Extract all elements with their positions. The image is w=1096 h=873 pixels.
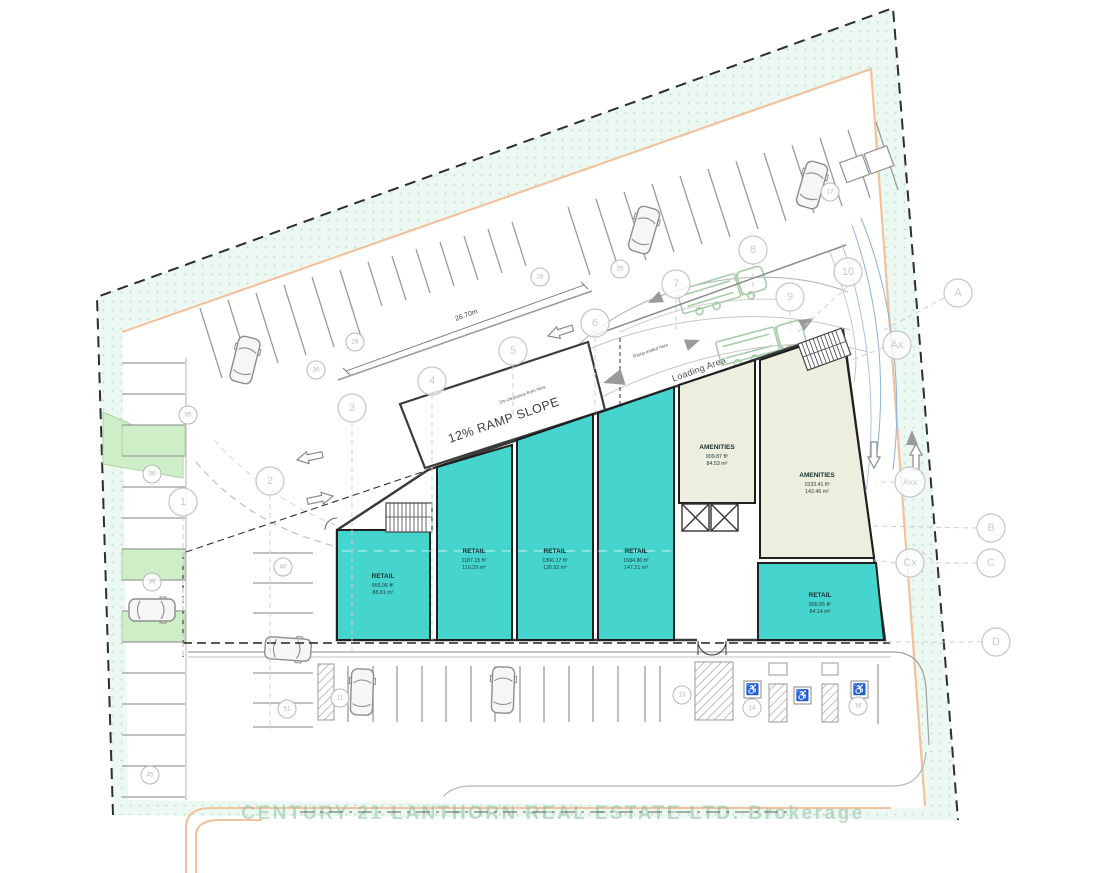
unit-label: RETAIL <box>809 592 832 599</box>
grid-bubble-C: C <box>977 549 1005 577</box>
stall-number-label: 39 <box>148 579 156 586</box>
stall-number-label: 40 <box>279 564 287 571</box>
amenities-label: AMENITIES <box>799 472 835 479</box>
stall-bubble-29: 29 <box>346 333 364 351</box>
amenities-area-ft: 909.87 ft² <box>706 454 729 460</box>
grid-bubble-10: 10 <box>834 258 862 286</box>
grid-bubble-label: 8 <box>750 244 756 256</box>
accessible-parking-sign-1: ♿ <box>744 681 761 698</box>
stall-number-label: 36 <box>148 471 156 478</box>
stall-bubble-30: 30 <box>307 361 325 379</box>
grid-bubble-label: 6 <box>592 317 598 329</box>
grid-bubble-2: 2 <box>256 467 284 495</box>
grid-bubble-label: 2 <box>267 475 273 487</box>
grid-bubble-A: A <box>944 279 972 307</box>
grid-bubble-label: Axx <box>903 477 918 487</box>
grid-bubble-label: 1 <box>180 496 186 508</box>
unit-area-ft: 1584.80 ft² <box>623 558 649 564</box>
accessible-parking-icon: ♿ <box>796 689 810 702</box>
arrowhead-icon <box>645 291 664 308</box>
unit-area-ft: 905.65 ft² <box>809 602 832 608</box>
unit-label: RETAIL <box>625 548 648 555</box>
stair-run-1 <box>386 503 432 532</box>
stall-number-label: 29 <box>351 339 359 346</box>
retail-unit-2 <box>437 445 512 640</box>
grid-bubble-Cx: Cx <box>896 549 924 577</box>
unit-area-m: 88.81 m² <box>373 590 394 596</box>
car-icon <box>264 634 312 663</box>
stall-number-label: 28 <box>536 274 544 281</box>
unit-area-m: 126.92 m² <box>543 565 567 571</box>
ramp-end-note: Ramp ended here <box>632 342 669 359</box>
stall-number-label: 16 <box>854 703 862 710</box>
unit-area-m: 84.14 m² <box>810 609 831 615</box>
grid-bubble-6: 6 <box>581 309 609 337</box>
stall-bubble-28: 28 <box>531 268 549 286</box>
accessible-parking-sign-2: ♿ <box>794 687 811 704</box>
stall-bubble-16: 16 <box>849 697 867 715</box>
grid-bubble-label: 7 <box>673 278 679 290</box>
stall-bubble-25: 25 <box>611 260 629 278</box>
truck-icon <box>677 265 770 319</box>
stall-bubble-35: 35 <box>179 406 197 424</box>
grid-bubble-label: 4 <box>429 375 435 387</box>
grid-bubble-label: 5 <box>510 345 516 357</box>
unit-area-ft: 955.96 ft² <box>372 583 395 589</box>
bottom-parking-row: ♿ ♿ ♿ <box>188 652 929 797</box>
stall-number-label: 11 <box>337 695 344 702</box>
stall-bubble-36: 36 <box>143 465 161 483</box>
grid-bubble-label: 10 <box>842 266 854 278</box>
car-icon <box>489 667 517 714</box>
grid-bubble-8: 8 <box>739 236 767 264</box>
grid-bubble-4: 4 <box>418 367 446 395</box>
car-icon <box>129 597 175 623</box>
grid-bubble-Ax: Ax <box>883 331 911 359</box>
retail-unit-4 <box>598 387 674 640</box>
aisle-dimension-label: 26.70m <box>454 308 479 322</box>
site-plan: ♿ ♿ ♿ 26.70m 12% RAMP SLO <box>0 0 1096 873</box>
grid-bubble-label: C <box>987 557 995 569</box>
unit-area-ft: 1366.17 ft² <box>542 558 568 564</box>
stall-bubble-51: 51 <box>278 700 296 718</box>
stall-number-label: 17 <box>826 189 834 196</box>
grid-bubble-label: 9 <box>787 291 793 303</box>
unit-label: RETAIL <box>544 548 567 555</box>
stall-number-label: 14 <box>748 705 756 712</box>
stall-number-label: 51 <box>283 706 291 713</box>
unit-area-ft: 1187.15 ft² <box>462 558 487 564</box>
accessible-parking-sign-3: ♿ <box>851 681 868 698</box>
amenities-area-1 <box>679 360 755 503</box>
unit-area-m: 147.21 m² <box>624 565 648 571</box>
arrowhead-icon <box>684 334 702 350</box>
stall-bubble-39: 39 <box>143 573 161 591</box>
amenities-area-m: 142.46 m² <box>805 489 829 495</box>
grid-bubble-Axx: Axx <box>895 467 925 497</box>
stall-bubble-14: 14 <box>743 699 761 717</box>
unit-label: RETAIL <box>372 573 395 580</box>
grid-bubble-label: A <box>954 287 962 299</box>
stall-number-label: 35 <box>184 412 192 419</box>
accessible-parking-icon: ♿ <box>853 683 867 696</box>
amenities-label: AMENITIES <box>699 444 735 451</box>
grid-bubble-label: 3 <box>349 402 355 414</box>
grid-bubble-3: 3 <box>338 394 366 422</box>
stall-bubble-40: 40 <box>274 558 292 576</box>
grid-bubble-D: D <box>982 628 1010 656</box>
grid-bubble-B: B <box>977 514 1005 542</box>
car-icon <box>348 669 376 716</box>
building: 12% RAMP SLOPE Ramp ended here 2m cleara… <box>325 328 885 655</box>
stall-bubble-13: 13 <box>673 686 691 704</box>
stall-number-label: 13 <box>678 692 686 699</box>
retail-unit-3 <box>517 414 593 640</box>
site-plan-drawing: ♿ ♿ ♿ 26.70m 12% RAMP SLO <box>0 0 1096 873</box>
grid-bubble-label: Ax <box>891 339 904 351</box>
stall-bubble-45: 45 <box>141 766 159 784</box>
arrow-left-icon <box>296 449 324 466</box>
brokerage-watermark: CENTURY 21 LANTHORN REAL ESTATE LTD. Bro… <box>241 803 865 824</box>
car-icon <box>227 335 263 386</box>
amenities-area-m: 84.53 m² <box>707 461 728 467</box>
grid-bubble-label: Cx <box>903 557 917 569</box>
amenities-area-ft: 1533.41 ft² <box>804 482 830 488</box>
arrow-right-icon <box>306 490 334 507</box>
stall-bubble-17: 17 <box>821 183 839 201</box>
unit-area-m: 110.29 m² <box>462 565 486 571</box>
grid-bubble-9: 9 <box>776 283 804 311</box>
grid-bubble-7: 7 <box>662 270 690 298</box>
grid-bubble-label: D <box>992 636 1000 648</box>
accessible-parking-icon: ♿ <box>746 683 760 696</box>
grid-bubble-1: 1 <box>169 488 197 516</box>
stall-number-label: 45 <box>146 772 154 779</box>
grid-bubble-label: B <box>987 522 994 534</box>
stall-number-label: 30 <box>312 367 320 374</box>
stall-bubble-11: 11 <box>331 689 349 707</box>
grid-bubble-5: 5 <box>499 337 527 365</box>
stall-number-label: 25 <box>616 266 624 273</box>
arrow-left-icon <box>546 322 574 341</box>
unit-label: RETAIL <box>463 548 486 555</box>
